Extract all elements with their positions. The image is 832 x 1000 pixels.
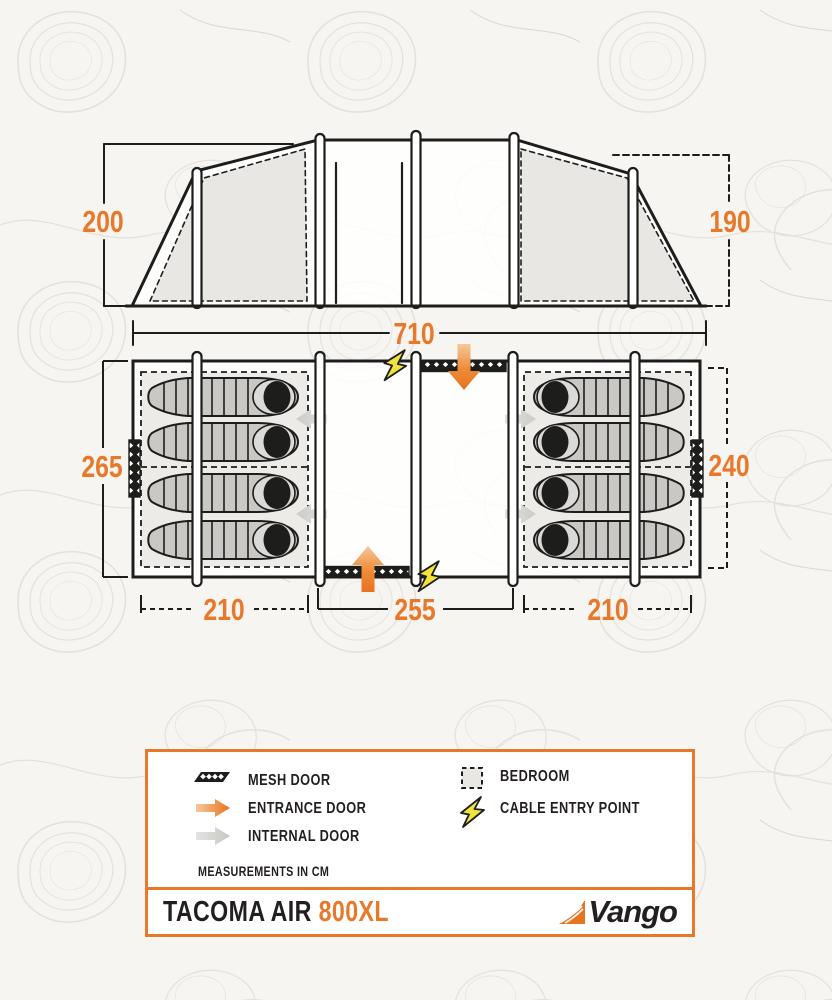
dimension-total-width: 710 — [393, 316, 434, 350]
mesh-door-icon — [190, 770, 234, 784]
dimension-height-right: 190 — [709, 204, 750, 238]
legend-box: MESH DOOR ENTRANCE DOOR INTERNAL DOOR ME… — [145, 749, 695, 937]
product-title: TACOMA AIR 800XL — [163, 896, 445, 929]
dimension-depth-left: 265 — [81, 449, 122, 483]
dimension-living-width: 255 — [394, 592, 435, 626]
product-name: TACOMA AIR — [163, 896, 312, 928]
sleeping-bag — [148, 422, 298, 462]
legend-label-cable-entry: CABLE ENTRY POINT — [500, 800, 675, 818]
tent-spec-sheet: 200 190 710 — [0, 0, 832, 1000]
brand-logo: Vango — [557, 894, 677, 930]
product-model: 800XL — [319, 896, 389, 928]
legend-label-entrance-door: ENTRANCE DOOR — [248, 800, 396, 818]
entrance-door-icon — [190, 798, 234, 818]
measurements-note: MEASUREMENTS IN CM — [198, 864, 362, 879]
legend-label-mesh-door: MESH DOOR — [248, 772, 351, 790]
dimension-depth-right: 240 — [708, 448, 749, 482]
legend-label-bedroom: BEDROOM — [500, 768, 587, 786]
brand-name: Vango — [588, 894, 677, 930]
title-bar: TACOMA AIR 800XL Vango — [148, 887, 692, 934]
cable-entry-icon — [450, 796, 494, 828]
side-mesh-door — [129, 440, 140, 497]
air-beam-pole — [193, 352, 202, 586]
internal-door-icon — [190, 826, 234, 846]
dimension-height-left: 200 — [82, 204, 123, 238]
sleeping-bag — [148, 377, 298, 417]
bedroom-left — [129, 352, 327, 586]
bedroom-icon — [450, 766, 494, 790]
dimension-bedroom-right-width: 210 — [587, 592, 628, 626]
sleeping-bag — [148, 520, 298, 560]
dimension-bedroom-left-width: 210 — [203, 592, 244, 626]
vango-sail-icon — [557, 897, 587, 927]
sleeping-bag — [148, 473, 298, 513]
bedroom-right — [505, 352, 703, 586]
legend-label-internal-door: INTERNAL DOOR — [248, 828, 388, 846]
